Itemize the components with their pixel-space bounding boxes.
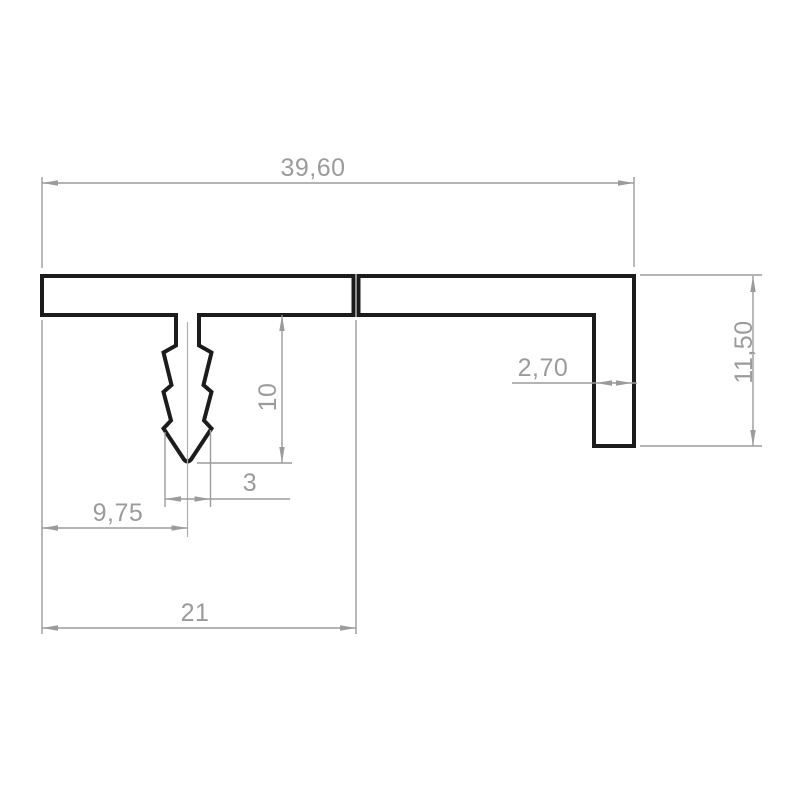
- arrow-right-icon: [172, 525, 188, 530]
- dim-left-section-label: 21: [181, 599, 210, 627]
- dim-total-width-label: 39,60: [280, 154, 345, 182]
- arrow-right-icon: [340, 625, 356, 630]
- technical-drawing-canvas: 39,60 11,50 2,70: [0, 0, 800, 800]
- profile-left-section: [42, 276, 354, 462]
- dim-leg-height: 11,50: [640, 275, 762, 446]
- arrow-left-icon: [165, 496, 181, 501]
- arrow-down-icon: [750, 430, 755, 446]
- dim-total-width: 39,60: [42, 154, 634, 268]
- dimensions: 39,60 11,50 2,70: [42, 154, 762, 634]
- profile-right-section: [359, 276, 635, 446]
- dim-leg-thickness-label: 2,70: [518, 354, 569, 382]
- arrow-left-icon: [42, 180, 58, 185]
- arrow-left-icon: [42, 525, 58, 530]
- dim-barb-width-label: 3: [243, 469, 257, 497]
- dim-barb-height: 10: [197, 315, 292, 463]
- arrow-up-icon: [279, 315, 284, 331]
- arrow-left-icon: [42, 625, 58, 630]
- arrow-down-icon: [279, 447, 284, 463]
- dim-barb-height-label: 10: [254, 383, 282, 412]
- dim-leg-height-label: 11,50: [730, 320, 758, 383]
- dim-barb-offset-label: 9,75: [93, 499, 144, 527]
- arrow-right-icon: [618, 180, 634, 185]
- arrow-up-icon: [750, 276, 755, 292]
- drawing-page: 39,60 11,50 2,70: [0, 0, 800, 800]
- arrow-right-icon: [195, 496, 211, 501]
